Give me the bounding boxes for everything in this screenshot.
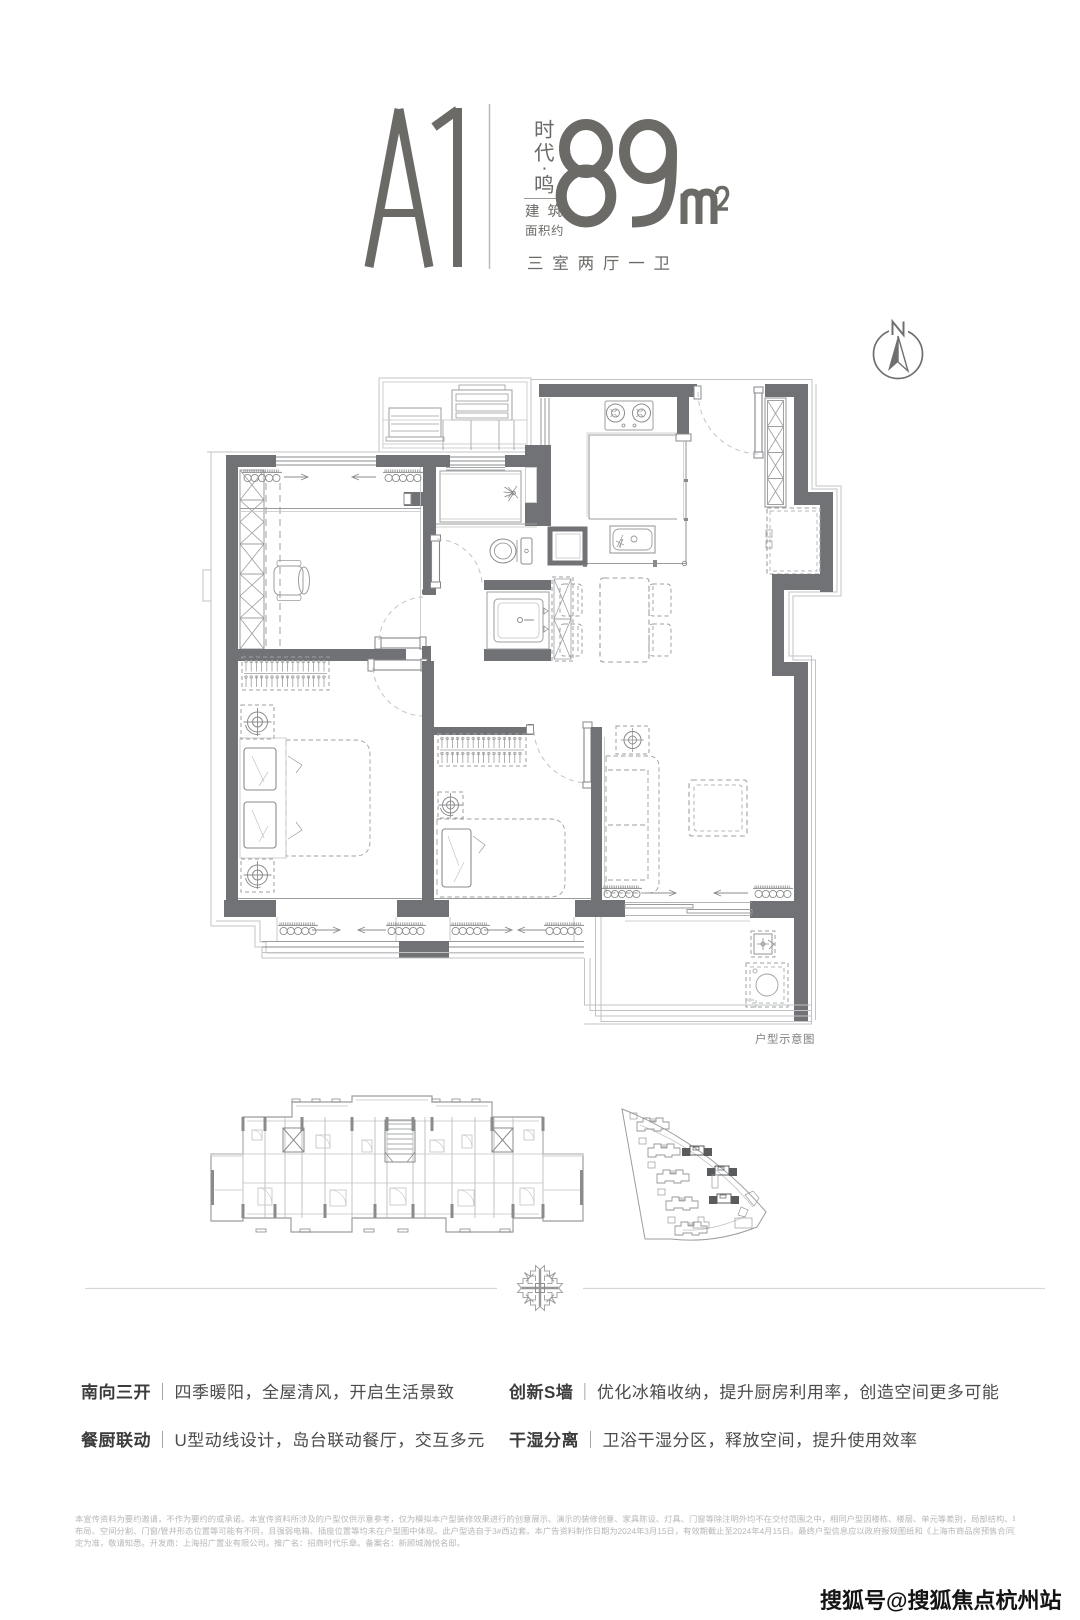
svg-text:户型示意图: 户型示意图 — [755, 1033, 815, 1046]
